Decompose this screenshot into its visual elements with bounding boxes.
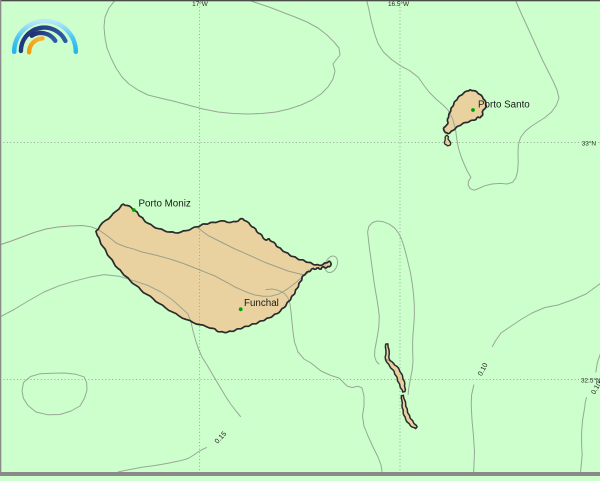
svg-text:33°N: 33°N [582, 139, 597, 147]
svg-text:Porto Santo: Porto Santo [478, 99, 530, 110]
svg-text:Porto Moniz: Porto Moniz [139, 198, 191, 209]
svg-text:Funchal: Funchal [244, 298, 279, 309]
